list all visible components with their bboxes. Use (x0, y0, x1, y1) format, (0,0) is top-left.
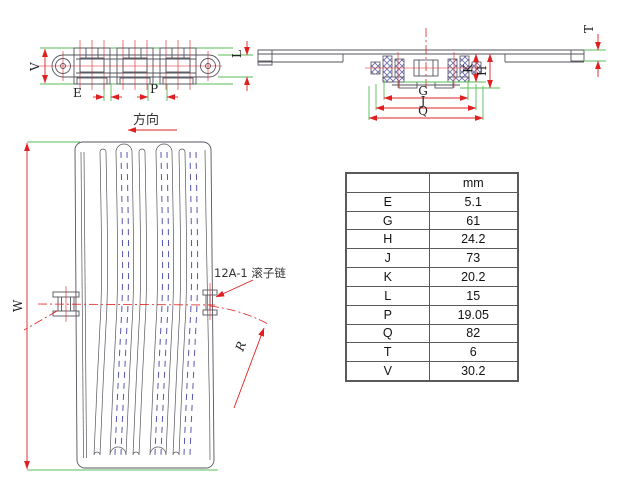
dim-label-Q: Q (418, 104, 428, 118)
dim-label-H: H (475, 66, 489, 76)
table-corner-cell (346, 173, 429, 192)
table-row: K20.2 (346, 268, 518, 287)
table-unit-header: mm (429, 173, 518, 192)
dim-label-L: L (230, 50, 244, 58)
dim-key: Q (346, 324, 429, 343)
plan-view-slat: R W 12A-1 滚子链 (11, 142, 286, 470)
dim-label-V: V (28, 62, 42, 72)
dim-value: 82 (429, 324, 518, 343)
dim-key: K (346, 268, 429, 287)
dim-key: J (346, 249, 429, 268)
dimension-table: mm E5.1 G61 H24.2 J73 K20.2 L15 P19.05 Q… (345, 172, 517, 382)
dim-label-P: P (150, 82, 158, 96)
dim-label-T: T (582, 25, 596, 33)
table-row: V30.2 (346, 362, 518, 381)
dim-value: 61 (429, 211, 518, 230)
dim-key: L (346, 286, 429, 305)
direction-label: 方向 (133, 112, 159, 128)
table-row: H24.2 (346, 230, 518, 249)
dim-key: H (346, 230, 429, 249)
dim-value: 20.2 (429, 268, 518, 287)
table-row: T6 (346, 343, 518, 362)
top-view-chain-assembly: V E P L 方向 (28, 40, 253, 130)
table-header-row: mm (346, 173, 518, 192)
dim-key: V (346, 362, 429, 381)
dim-key: G (346, 211, 429, 230)
engineering-drawing-sheet: V E P L 方向 (0, 0, 625, 500)
plan-view-hidden-chain-lines (115, 152, 198, 455)
dim-value: 73 (429, 249, 518, 268)
table-row: P19.05 (346, 305, 518, 324)
chain-type-leader (216, 280, 253, 297)
chain-type-label: 12A-1 滚子链 (214, 266, 286, 280)
top-view-extension-lines (40, 48, 253, 101)
dim-value: 30.2 (429, 362, 518, 381)
dim-value: 6 (429, 343, 518, 362)
table-row: E5.1 (346, 192, 518, 211)
dim-label-E: E (73, 86, 82, 100)
dim-key: T (346, 343, 429, 362)
dim-label-K: K (461, 63, 475, 73)
table-row: Q82 (346, 324, 518, 343)
table-row: J73 (346, 249, 518, 268)
dim-value: 15 (429, 286, 518, 305)
dim-value: 24.2 (429, 230, 518, 249)
dim-label-W: W (11, 299, 25, 312)
side-view-slat-and-rollers: G J Q K H T (258, 25, 606, 120)
dim-value: 19.05 (429, 305, 518, 324)
dim-key: P (346, 305, 429, 324)
radius-dimension-line (234, 328, 264, 408)
roller-hatched-left (371, 56, 404, 82)
plan-view-slots (94, 144, 187, 455)
table-row: L15 (346, 286, 518, 305)
dim-label-R: R (232, 340, 249, 354)
dim-value: 5.1 (429, 192, 518, 211)
table-row: G61 (346, 211, 518, 230)
drawing-canvas: V E P L 方向 (0, 0, 625, 500)
dim-key: E (346, 192, 429, 211)
